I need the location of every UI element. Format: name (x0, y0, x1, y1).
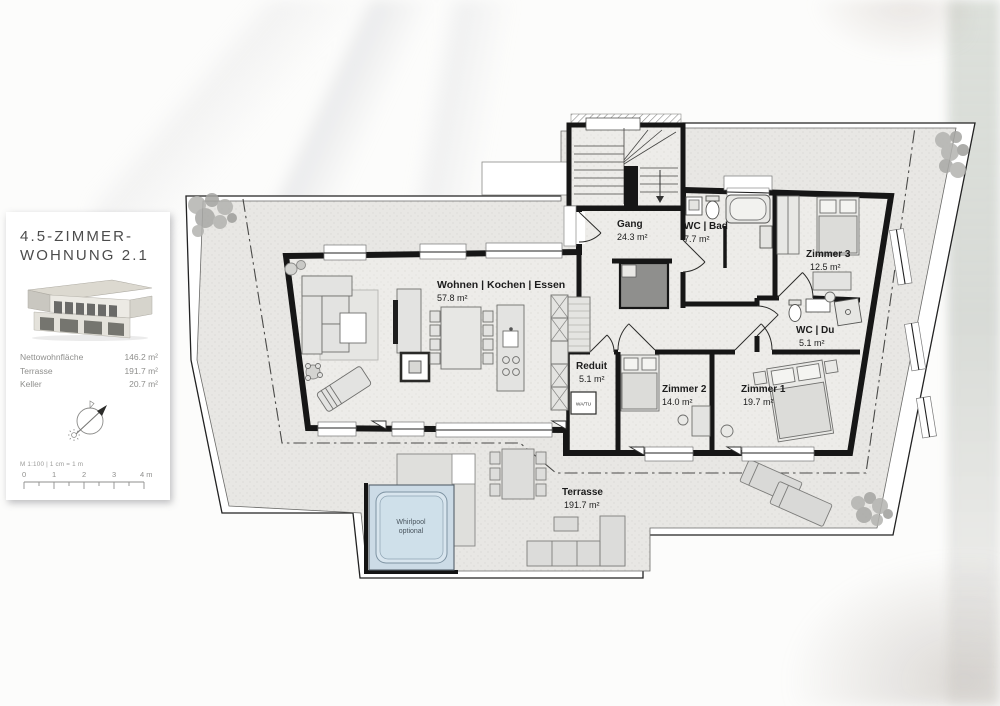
room-label-terrasse: Terrasse (562, 487, 603, 498)
title-line1: 4.5-ZIMMER- (20, 228, 133, 245)
room-label-zimmer1: Zimmer 1 (741, 384, 786, 395)
apartment-title: 4.5-ZIMMER- WOHNUNG 2.1 (20, 227, 158, 265)
compass-icon (63, 396, 115, 446)
stat-row: Terrasse 191.7 m² (20, 365, 158, 379)
room-label-zimmer3: Zimmer 3 (806, 249, 851, 260)
outdoor-dining-set (490, 449, 546, 499)
room-area-zimmer3: 12.5 m² (810, 262, 841, 272)
coffee-table (340, 313, 366, 343)
whirlpool-label: Whirlpool (396, 519, 426, 526)
technical-shaft (620, 263, 668, 308)
room-label-zimmer2: Zimmer 2 (662, 384, 707, 395)
tv-sideboard (393, 289, 421, 353)
kitchen-island (497, 305, 524, 391)
shower-toilet (789, 300, 801, 322)
bathtub (726, 195, 770, 223)
stat-label: Terrasse (20, 365, 53, 379)
stat-value: 191.7 m² (124, 365, 158, 379)
wardrobe-zimmer3 (777, 196, 799, 254)
room-area-terrasse: 191.7 m² (564, 500, 600, 510)
whirlpool-label: optional (399, 528, 424, 535)
stool-zimmer1 (721, 425, 733, 437)
kitchen-tall-cabinets (551, 295, 568, 410)
stat-value: 146.2 m² (124, 351, 158, 365)
room-label-wohnen: Wohnen | Kochen | Essen (437, 279, 565, 291)
room-area-reduit: 5.1 m² (579, 374, 605, 384)
title-line2: WOHNUNG 2.1 (20, 247, 149, 264)
room-area-wohnen: 57.8 m² (437, 293, 468, 303)
scale-tick-label: 4 m (140, 470, 153, 479)
area-stats: Nettowohnfläche 146.2 m² Terrasse 191.7 … (20, 351, 158, 392)
stairwell (569, 114, 683, 208)
room-label-wc-bad: WC | Bad (684, 221, 728, 232)
bath-toilet (706, 196, 719, 219)
washer-dryer: WA/TU (571, 392, 596, 414)
room-area-zimmer2: 14.0 m² (662, 397, 693, 407)
shower (834, 298, 861, 325)
stat-value: 20.7 m² (129, 378, 158, 392)
scale-tick-label: 0 (22, 470, 26, 479)
scale-note: M 1:100 | 1 cm = 1 m (20, 461, 158, 468)
scale-tick-label: 3 (112, 470, 116, 479)
scale-bar: 0 1 2 3 4 m (20, 469, 158, 493)
planter-box (482, 162, 569, 195)
scale-tick-label: 2 (82, 470, 86, 479)
stat-row: Nettowohnfläche 146.2 m² (20, 351, 158, 365)
washer-dryer-label: WA/TU (576, 402, 592, 408)
room-label-gang: Gang (617, 219, 643, 230)
bed-zimmer2 (621, 355, 659, 411)
fridge-cabinet (568, 297, 590, 352)
room-area-zimmer1: 19.7 m² (743, 397, 774, 407)
room-area-gang: 24.3 m² (617, 232, 648, 242)
bed-zimmer3 (817, 197, 859, 255)
info-card: 4.5-ZIMMER- WOHNUNG 2.1 Nettowohnfläche … (6, 212, 170, 500)
room-label-wc-du: WC | Du (796, 325, 834, 336)
room-label-reduit: Reduit (576, 361, 608, 372)
room-area-wc-du: 5.1 m² (799, 338, 825, 348)
room-area-wc-bad: 7.7 m² (684, 234, 710, 244)
stat-label: Keller (20, 378, 42, 392)
fireplace (401, 353, 429, 381)
scale-tick-label: 1 (52, 470, 56, 479)
stat-row: Keller 20.7 m² (20, 378, 158, 392)
stat-label: Nettowohnfläche (20, 351, 83, 365)
bath-cabinet (760, 226, 772, 248)
bath-sink (686, 197, 702, 215)
building-render (20, 274, 158, 342)
